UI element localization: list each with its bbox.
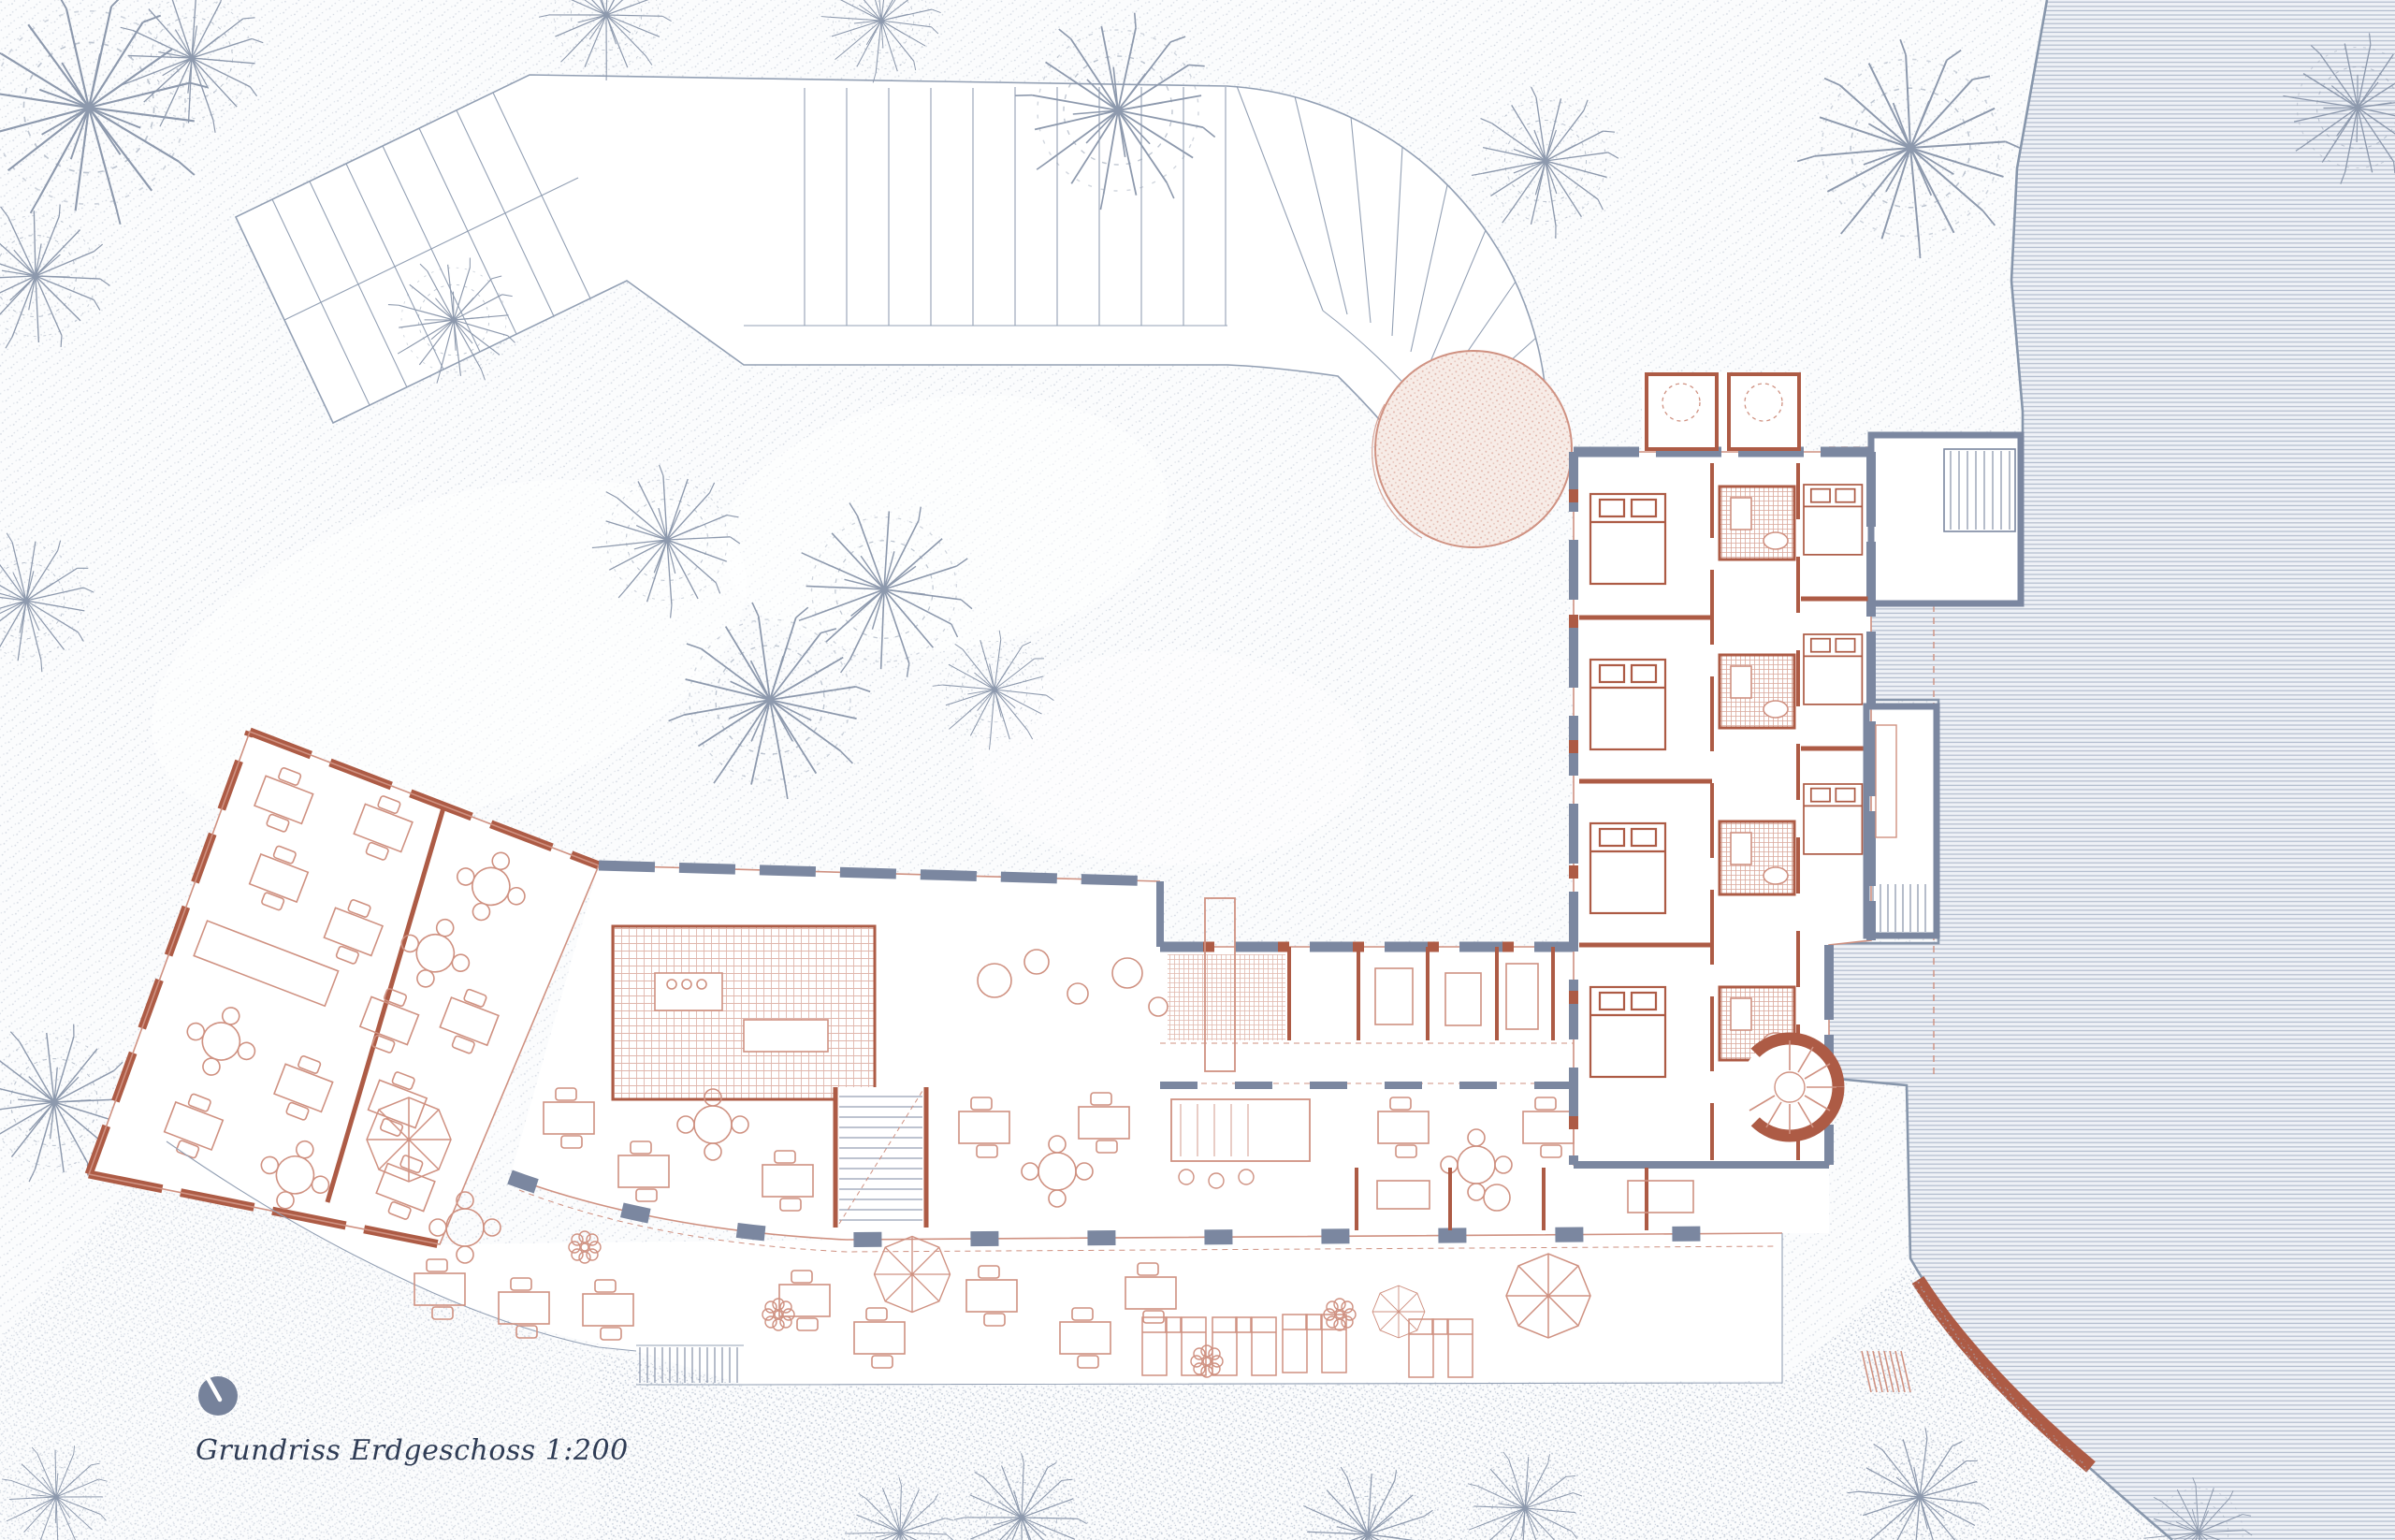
pond [1372, 351, 1572, 547]
floor-plan-sheet: Grundriss Erdgeschoss 1:200 [0, 0, 2395, 1540]
main-stair [835, 1087, 926, 1228]
spiral-stair-tower [1741, 1039, 1838, 1136]
kitchen [613, 926, 875, 1099]
umbrella [1506, 1254, 1590, 1338]
northeast-annex-floor [1871, 435, 2021, 603]
umbrella [875, 1237, 951, 1313]
umbrella [367, 1097, 451, 1182]
drawing-caption: Grundriss Erdgeschoss 1:200 [196, 1434, 629, 1467]
umbrella [1372, 1286, 1425, 1338]
north-arrow-icon [198, 1376, 238, 1416]
floor-plan-canvas: Grundriss Erdgeschoss 1:200 [0, 0, 2395, 1540]
lakeside-annex-floor [1866, 706, 1937, 936]
